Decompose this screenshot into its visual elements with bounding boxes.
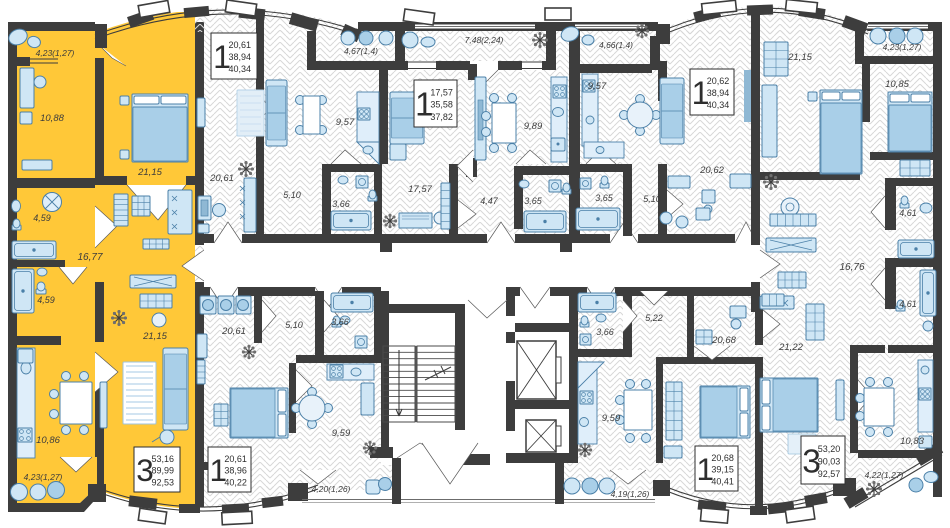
svg-text:5,10: 5,10 (283, 190, 301, 200)
svg-text:5,10: 5,10 (285, 320, 303, 330)
svg-text:38,96: 38,96 (224, 466, 247, 476)
svg-text:90,03: 90,03 (818, 456, 841, 466)
svg-text:9,57: 9,57 (336, 117, 355, 128)
svg-text:4,61: 4,61 (899, 208, 917, 218)
svg-text:3,66: 3,66 (332, 199, 350, 209)
svg-text:4,23(1,27): 4,23(1,27) (883, 42, 922, 52)
svg-text:21,15: 21,15 (142, 331, 167, 342)
svg-text:5,10: 5,10 (643, 194, 661, 204)
svg-text:40,34: 40,34 (228, 64, 251, 74)
svg-text:53,20: 53,20 (818, 444, 841, 454)
svg-text:3,65: 3,65 (524, 196, 543, 206)
svg-text:4,19(1,26): 4,19(1,26) (611, 489, 650, 499)
svg-text:38,94: 38,94 (228, 52, 251, 62)
svg-text:4,61: 4,61 (899, 299, 917, 309)
svg-text:20,61: 20,61 (228, 40, 251, 50)
svg-text:35,58: 35,58 (430, 100, 453, 110)
svg-text:10,85: 10,85 (885, 79, 909, 90)
svg-text:9,57: 9,57 (588, 81, 607, 92)
svg-text:20,62: 20,62 (699, 165, 724, 176)
svg-text:9,89: 9,89 (524, 121, 543, 132)
svg-text:9,59: 9,59 (332, 428, 351, 439)
svg-text:3,66: 3,66 (596, 327, 614, 337)
svg-text:7,48(2,24): 7,48(2,24) (465, 35, 504, 45)
svg-text:3,65: 3,65 (595, 193, 614, 203)
svg-text:40,41: 40,41 (711, 476, 734, 486)
svg-text:21,15: 21,15 (137, 167, 162, 178)
svg-text:53,16: 53,16 (151, 454, 174, 464)
svg-text:10,83: 10,83 (900, 436, 924, 447)
svg-text:20,68: 20,68 (711, 453, 734, 463)
svg-text:4,59: 4,59 (37, 295, 55, 305)
svg-text:5,22: 5,22 (645, 313, 663, 323)
svg-text:89,99: 89,99 (151, 466, 174, 476)
svg-text:4,22(1,27): 4,22(1,27) (865, 470, 904, 480)
svg-text:92,53: 92,53 (151, 477, 174, 487)
svg-text:10,88: 10,88 (40, 113, 64, 124)
svg-text:4,59: 4,59 (33, 213, 51, 223)
svg-text:92,57: 92,57 (818, 469, 841, 479)
svg-text:4,23(1,27): 4,23(1,27) (36, 48, 75, 58)
svg-text:20,61: 20,61 (221, 326, 246, 337)
svg-text:16,76: 16,76 (839, 262, 864, 273)
svg-text:9,59: 9,59 (602, 413, 621, 424)
svg-text:4,47: 4,47 (480, 196, 499, 206)
svg-text:20,61: 20,61 (209, 173, 234, 184)
svg-text:4,23(1,27): 4,23(1,27) (24, 472, 63, 482)
svg-text:21,22: 21,22 (778, 342, 803, 353)
svg-text:3,66: 3,66 (331, 317, 349, 327)
svg-text:20,61: 20,61 (224, 454, 247, 464)
svg-text:16,77: 16,77 (77, 252, 102, 263)
svg-text:17,57: 17,57 (430, 88, 453, 98)
svg-text:38,94: 38,94 (707, 88, 730, 98)
svg-text:39,15: 39,15 (711, 465, 734, 475)
svg-text:40,22: 40,22 (224, 477, 247, 487)
svg-text:20,62: 20,62 (707, 76, 730, 86)
svg-text:17,57: 17,57 (408, 184, 432, 195)
svg-text:37,82: 37,82 (430, 112, 453, 122)
svg-text:40,34: 40,34 (707, 100, 730, 110)
svg-text:4,67(1,4): 4,67(1,4) (344, 46, 378, 56)
svg-text:10,86: 10,86 (36, 435, 60, 446)
svg-text:21,15: 21,15 (787, 52, 812, 63)
svg-text:20,68: 20,68 (711, 335, 736, 346)
svg-text:4,66(1,4): 4,66(1,4) (599, 40, 633, 50)
svg-text:4,20(1,26): 4,20(1,26) (312, 484, 351, 494)
